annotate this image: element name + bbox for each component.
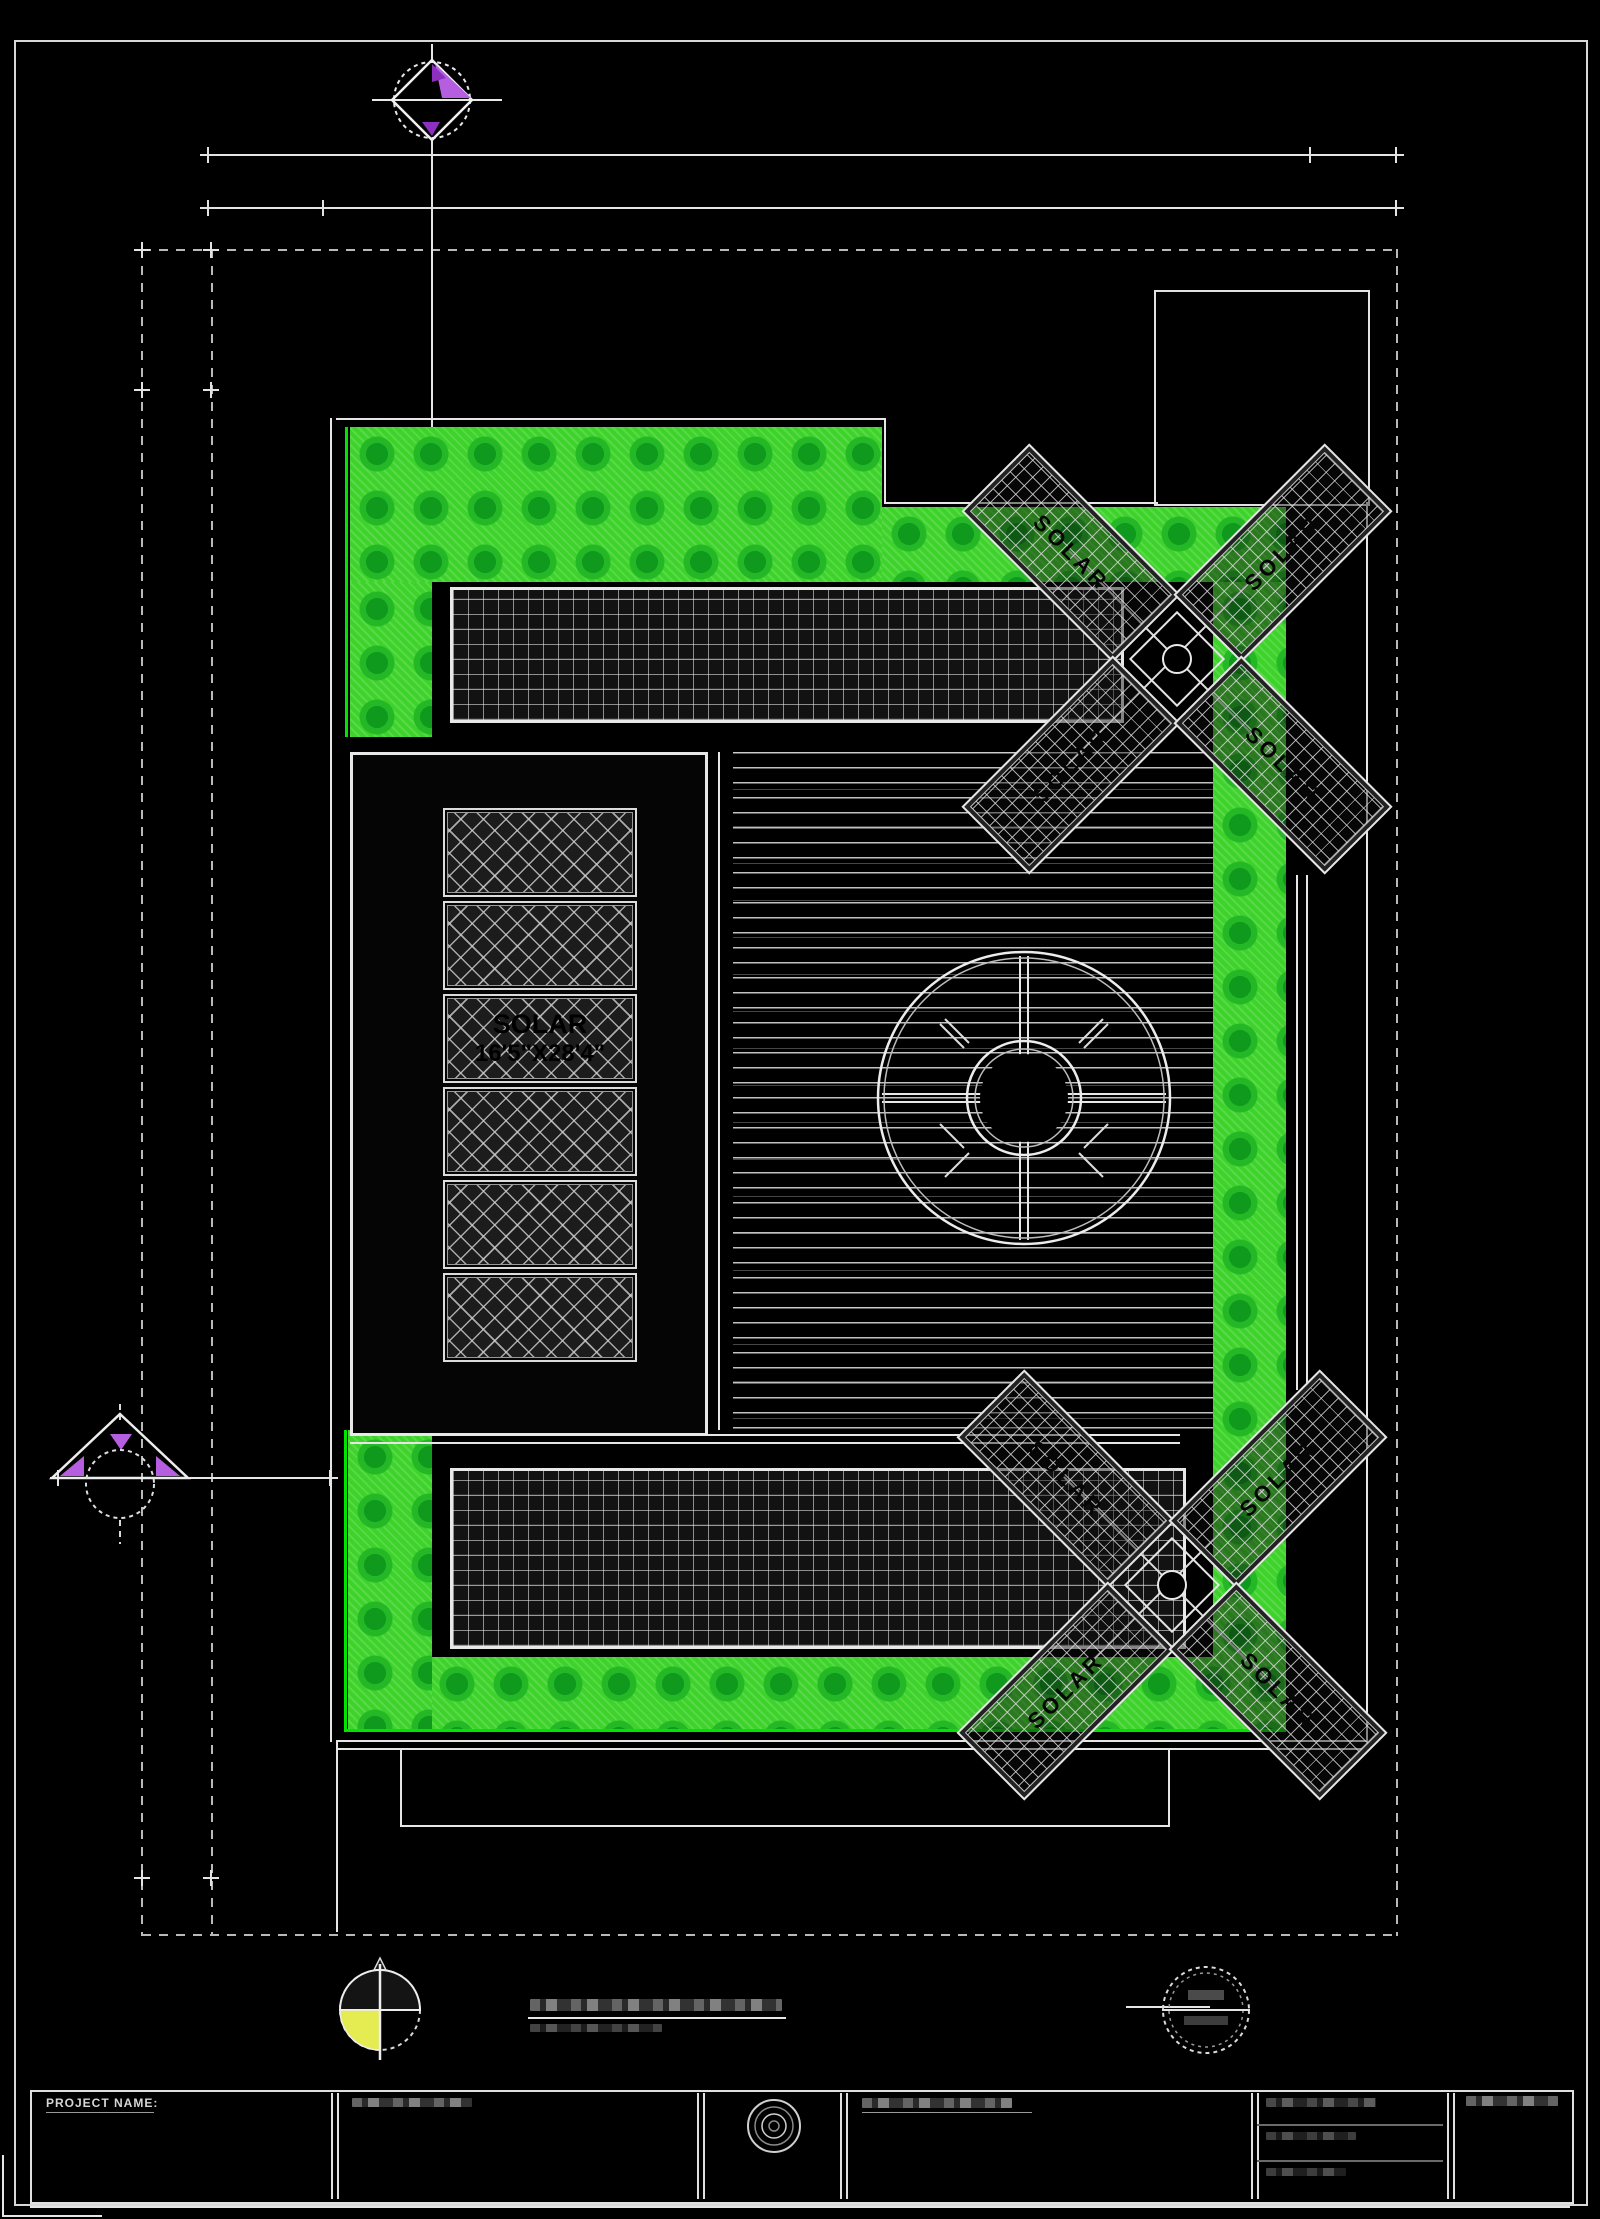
roof-plan-sheet: SOLAR 16'5"X28'4" SOLAR SOLAR SOLAR SOLA… <box>0 0 1600 2219</box>
solar-panel-1 <box>443 808 637 897</box>
dim-tick <box>1302 147 1318 163</box>
grass-edge-line <box>345 427 348 737</box>
roof-outline <box>336 1748 1368 1750</box>
frame-dashed-right <box>1396 249 1398 1936</box>
lower-level-outline <box>1168 1750 1170 1827</box>
dim-tick <box>134 242 150 258</box>
parapet-line <box>1306 875 1308 1390</box>
grass-edge-line <box>344 1729 1286 1732</box>
roof-outline <box>336 1740 1368 1742</box>
frame-dashed-top <box>142 249 1400 251</box>
dimension-line <box>208 207 1400 209</box>
illegible-field-text <box>1466 2096 1558 2106</box>
title-block-divider <box>1447 2093 1449 2199</box>
dim-tick <box>134 1870 150 1886</box>
illegible-scale-note <box>530 2024 662 2032</box>
solar-panel-2 <box>443 901 637 990</box>
title-block <box>30 2090 1574 2204</box>
seal-logo-icon <box>746 2096 802 2156</box>
extension-line <box>431 140 433 430</box>
dim-tick <box>200 200 216 216</box>
grass-edge-line <box>344 1430 347 1730</box>
solar-panel-5 <box>443 1180 637 1269</box>
field-row-divider <box>1257 2124 1443 2126</box>
solar-blade-label: SOLAR <box>1235 1436 1322 1523</box>
solar-blade-label: SOLAR <box>1240 510 1327 597</box>
title-block-divider <box>331 2093 333 2199</box>
dim-tick <box>1388 147 1404 163</box>
dim-tick <box>203 1870 219 1886</box>
illegible-field-text <box>1266 2098 1376 2107</box>
lower-level-outline <box>400 1750 402 1827</box>
field-row-divider <box>1257 2160 1443 2162</box>
windmill-hub <box>1162 644 1192 674</box>
dim-tick <box>424 200 440 216</box>
compass-icon <box>330 1956 430 2068</box>
field-underline <box>862 2112 1032 2113</box>
grass-top-band <box>350 427 882 582</box>
drawing-title-underline <box>528 2017 786 2019</box>
illegible-field-text <box>862 2098 1012 2108</box>
dimension-line <box>208 154 1400 156</box>
project-name-label: PROJECT NAME: <box>46 2096 158 2110</box>
lower-level-outline <box>400 1825 1170 1827</box>
project-name-underline <box>46 2112 154 2113</box>
corner-bracket <box>2 2215 102 2217</box>
reference-bubble-icon <box>1158 1962 1254 2058</box>
illegible-field-text <box>1266 2168 1346 2176</box>
dim-tick <box>315 200 331 216</box>
dim-tick <box>200 147 216 163</box>
solar-blade-label: SOLAR <box>1235 1648 1322 1735</box>
solar-panel-label-line1: SOLAR <box>445 1009 635 1040</box>
circular-skylight <box>872 946 1176 1250</box>
wall-line <box>718 752 720 1430</box>
grass-left-column <box>350 582 432 737</box>
north-arrow-icon <box>372 52 502 152</box>
frame-dashed-left-2 <box>211 249 213 1936</box>
illegible-drawing-title <box>530 1999 782 2011</box>
solar-panel-label: SOLAR 16'5"X28'4" <box>445 1009 635 1068</box>
solar-blade-label: SOLAR <box>1023 1436 1110 1523</box>
title-block-divider <box>840 2093 842 2199</box>
grass-bottom-left-column <box>348 1430 432 1730</box>
dim-tick <box>203 242 219 258</box>
solar-panel-6 <box>443 1273 637 1362</box>
dim-tick <box>134 382 150 398</box>
section-marker-icon <box>48 1404 198 1564</box>
roof-outline <box>336 418 886 420</box>
solar-panel-label-line2: 16'5"X28'4" <box>445 1040 635 1068</box>
solar-blade-label: SOLAR <box>1240 722 1327 809</box>
solar-panel-3: SOLAR 16'5"X28'4" <box>443 994 637 1083</box>
title-block-divider <box>1251 2093 1253 2199</box>
parapet-line <box>1296 875 1298 1390</box>
solar-blade-label: SOLAR <box>1023 1648 1110 1735</box>
illegible-field-text <box>352 2098 472 2107</box>
title-block-divider <box>697 2093 699 2199</box>
windmill-hub <box>1157 1570 1187 1600</box>
roof-outline <box>884 418 886 504</box>
grass-bottom-band <box>430 1657 1286 1730</box>
solar-panel-4 <box>443 1087 637 1176</box>
solar-blade-label: SOLAR <box>1028 510 1115 597</box>
illegible-field-text <box>1266 2132 1356 2140</box>
solar-blade-label: SOLAR <box>1028 722 1115 809</box>
corner-bracket <box>2 2155 4 2217</box>
frame-dashed-left-1 <box>141 249 143 1936</box>
roof-outline <box>1366 502 1368 1742</box>
solar-array-top <box>450 587 1124 723</box>
lower-level-outline <box>336 1742 338 1932</box>
roof-outline <box>330 418 332 1742</box>
dim-tick <box>1388 200 1404 216</box>
dim-tick <box>203 382 219 398</box>
title-block-bottom-line <box>30 2206 1570 2208</box>
frame-dashed-bottom <box>142 1934 1400 1936</box>
